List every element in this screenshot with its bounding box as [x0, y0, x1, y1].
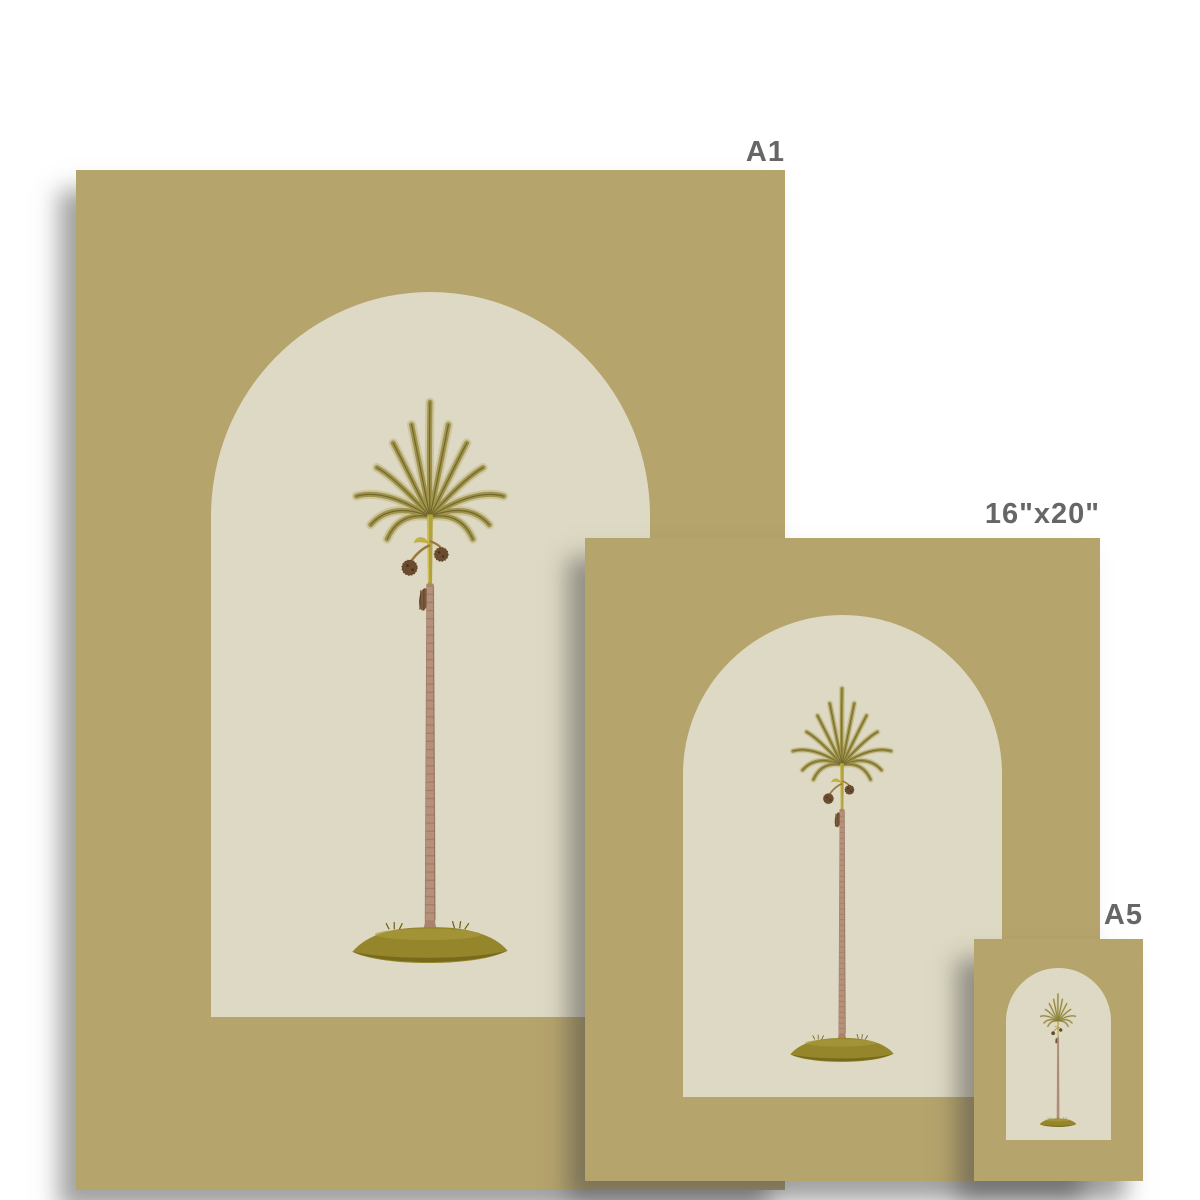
arch-frame	[1006, 968, 1111, 1140]
arch-frame	[683, 615, 1002, 1097]
size-label-a5: A5	[1104, 901, 1143, 930]
palm-tree-illustration	[349, 394, 512, 966]
size-label-16x20: 16"x20"	[985, 500, 1100, 529]
product-size-comparison: A1 16"x20" A5	[0, 0, 1200, 1200]
palm-tree-illustration	[1039, 992, 1078, 1128]
print-a5	[974, 939, 1143, 1181]
palm-tree-illustration	[788, 683, 897, 1064]
size-label-a1: A1	[746, 138, 785, 167]
